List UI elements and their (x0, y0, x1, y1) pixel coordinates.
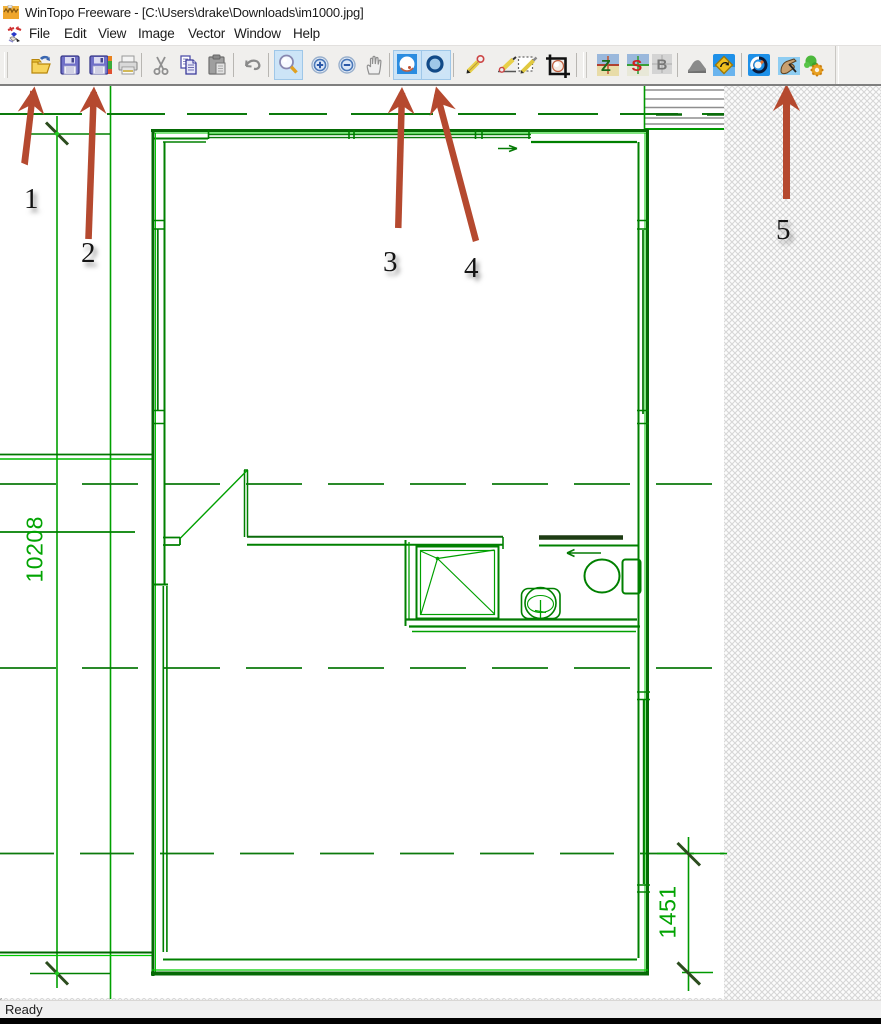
svg-text:B: B (657, 57, 668, 74)
svg-text:Z: Z (601, 58, 611, 75)
svg-text:S: S (632, 58, 643, 75)
